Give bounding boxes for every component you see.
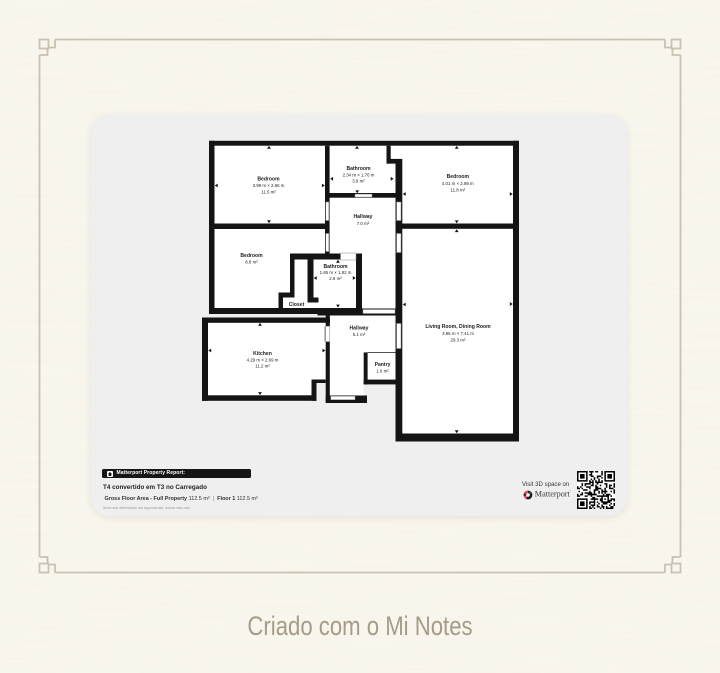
svg-text:Living Room, Dining Room: Living Room, Dining Room xyxy=(425,324,491,330)
svg-text:7.0 m²: 7.0 m² xyxy=(357,221,370,226)
svg-text:2.34 m × 1.76 m: 2.34 m × 1.76 m xyxy=(343,173,375,178)
svg-text:Closet: Closet xyxy=(289,302,305,308)
svg-text:11.2 m²: 11.2 m² xyxy=(255,363,270,368)
svg-text:1.0 m²: 1.0 m² xyxy=(376,368,389,373)
svg-text:11.8 m²: 11.8 m² xyxy=(451,188,466,193)
svg-text:Bathroom: Bathroom xyxy=(346,166,371,172)
svg-text:11.5 m²: 11.5 m² xyxy=(261,190,276,195)
svg-text:Kitchen: Kitchen xyxy=(253,351,272,357)
svg-text:29.3 m²: 29.3 m² xyxy=(451,338,466,343)
svg-text:3.9 m²: 3.9 m² xyxy=(352,179,365,184)
svg-text:5.1 m²: 5.1 m² xyxy=(353,332,366,337)
svg-text:Hallway: Hallway xyxy=(354,214,373,220)
svg-text:2.9 m²: 2.9 m² xyxy=(329,276,342,281)
svg-text:4.01 m × 2.89 m: 4.01 m × 2.89 m xyxy=(442,181,474,186)
svg-text:Bedroom: Bedroom xyxy=(240,253,263,259)
svg-text:3.96 m × 7.41 m: 3.96 m × 7.41 m xyxy=(442,331,474,336)
svg-text:3.99 m × 2.86 m: 3.99 m × 2.86 m xyxy=(253,183,285,188)
svg-text:Bedroom: Bedroom xyxy=(447,174,470,180)
svg-text:Bedroom: Bedroom xyxy=(257,176,280,182)
svg-text:Hallway: Hallway xyxy=(350,326,369,332)
svg-text:Pantry: Pantry xyxy=(375,362,391,368)
svg-text:4.29 m × 2.69 m: 4.29 m × 2.69 m xyxy=(247,357,279,362)
svg-text:1.65 m × 1.82 m: 1.65 m × 1.82 m xyxy=(320,270,352,275)
svg-text:8.8 m²: 8.8 m² xyxy=(245,260,258,265)
